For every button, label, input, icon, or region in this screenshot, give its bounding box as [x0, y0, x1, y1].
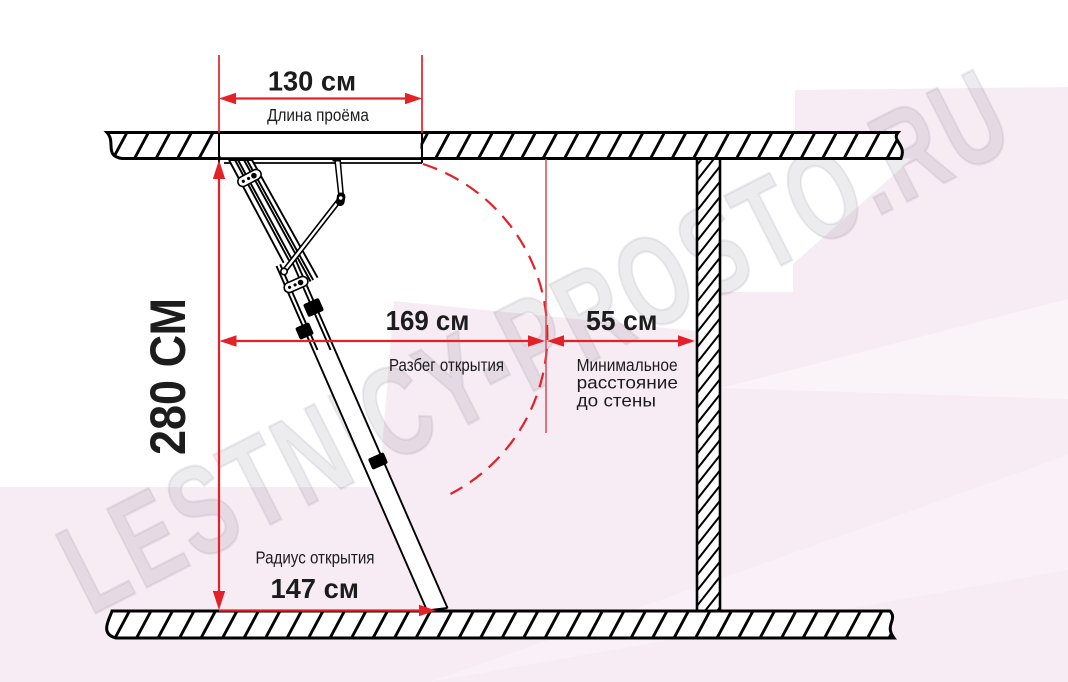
svg-text:169 см: 169 см	[386, 305, 470, 336]
svg-text:Разбег открытия: Разбег открытия	[389, 355, 504, 375]
svg-text:55 см: 55 см	[586, 305, 658, 336]
svg-text:Длина проёма: Длина проёма	[267, 105, 369, 125]
svg-text:130 см: 130 см	[268, 66, 356, 97]
svg-text:до стены: до стены	[577, 390, 656, 410]
svg-text:147 см: 147 см	[270, 573, 359, 604]
svg-text:Радиус открытия: Радиус открытия	[256, 548, 375, 568]
svg-text:280 СМ: 280 СМ	[140, 298, 196, 455]
